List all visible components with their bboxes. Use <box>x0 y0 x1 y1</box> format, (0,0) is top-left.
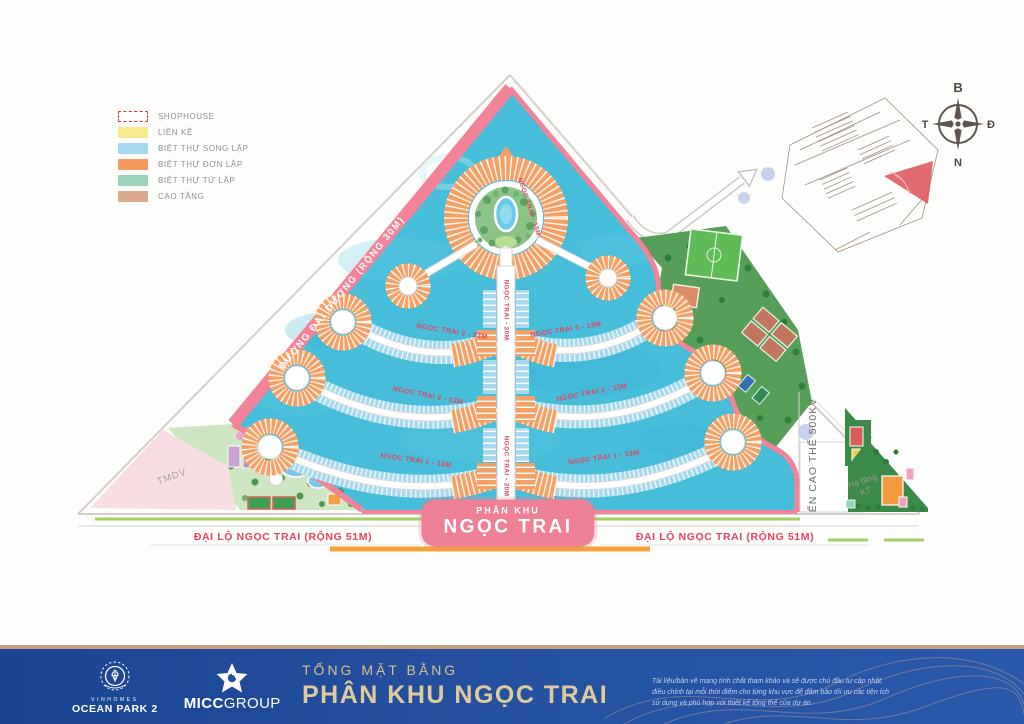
badge-line2: NGỌC TRAI <box>443 517 572 539</box>
masterplan-poster: B N Đ T SHOPHOUSE LIỀN KỀ BIỆT THỰ SONG … <box>0 0 1024 724</box>
legend-swatch-don-lap <box>118 159 148 170</box>
label-power-line: ẾN CAO THẾ 500KV <box>807 398 819 512</box>
legend-swatch-lien-ke <box>118 127 148 138</box>
legend-swatch-song-lap <box>118 143 148 154</box>
svg-text:B: B <box>953 80 962 95</box>
road-label-boulevard-left: ĐẠI LỘ NGỌC TRAI (RỘNG 51M) <box>194 531 372 543</box>
footer-disclaimer: Tài liệu/bản vẽ mang tính chất tham khảo… <box>652 677 890 710</box>
locator-map <box>782 98 938 252</box>
legend-item-song-lap: BIỆT THỰ SONG LẬP <box>118 142 249 154</box>
legend-swatch-shophouse <box>118 111 148 122</box>
legend-item-don-lap: BIỆT THỰ ĐƠN LẬP <box>118 158 249 170</box>
footer-brands: VINHOMES OCEAN PARK 2 MICCGROUP <box>72 659 281 715</box>
road-label-boulevard-right: ĐẠI LỘ NGỌC TRAI (RỘNG 51M) <box>636 531 814 543</box>
legend-item-shophouse: SHOPHOUSE <box>118 110 249 122</box>
compass-rose: B N Đ T <box>922 80 995 169</box>
svg-text:N: N <box>954 157 962 169</box>
legend-swatch-tu-lap <box>118 175 148 186</box>
vinhomes-logo: VINHOMES OCEAN PARK 2 <box>72 659 158 715</box>
footer-title: TỔNG MẶT BẰNG PHÂN KHU NGỌC TRAI <box>302 662 608 710</box>
micc-logo: MICCGROUP <box>184 662 281 712</box>
footer-title-small: TỔNG MẶT BẰNG <box>302 662 608 678</box>
masterplan-map: B N Đ T <box>0 0 1024 645</box>
svg-text:Đ: Đ <box>987 119 995 131</box>
legend-item-tu-lap: BIỆT THỰ TỨ LẬP <box>118 174 249 186</box>
street-label-spine-top: NGỌC TRAI - 20M <box>503 280 510 341</box>
footer-title-large: PHÂN KHU NGỌC TRAI <box>302 681 608 710</box>
micc-star-icon <box>215 662 249 694</box>
street-label-spine-bottom: NGỌC TRAI - 20M <box>503 436 510 497</box>
legend-item-cao-tang: CAO TẦNG <box>118 190 249 202</box>
legend: SHOPHOUSE LIỀN KỀ BIỆT THỰ SONG LẬP BIỆT… <box>118 110 249 202</box>
footer: VINHOMES OCEAN PARK 2 MICCGROUP TỔNG MẶT… <box>0 645 1024 724</box>
svg-text:T: T <box>922 119 929 131</box>
legend-swatch-cao-tang <box>118 191 148 202</box>
legend-item-lien-ke: LIỀN KỀ <box>118 126 249 138</box>
vinhomes-crest-icon <box>97 659 133 695</box>
badge-line1: PHÂN KHU <box>443 506 572 516</box>
subdivision-badge: PHÂN KHU NGỌC TRAI <box>421 500 594 547</box>
